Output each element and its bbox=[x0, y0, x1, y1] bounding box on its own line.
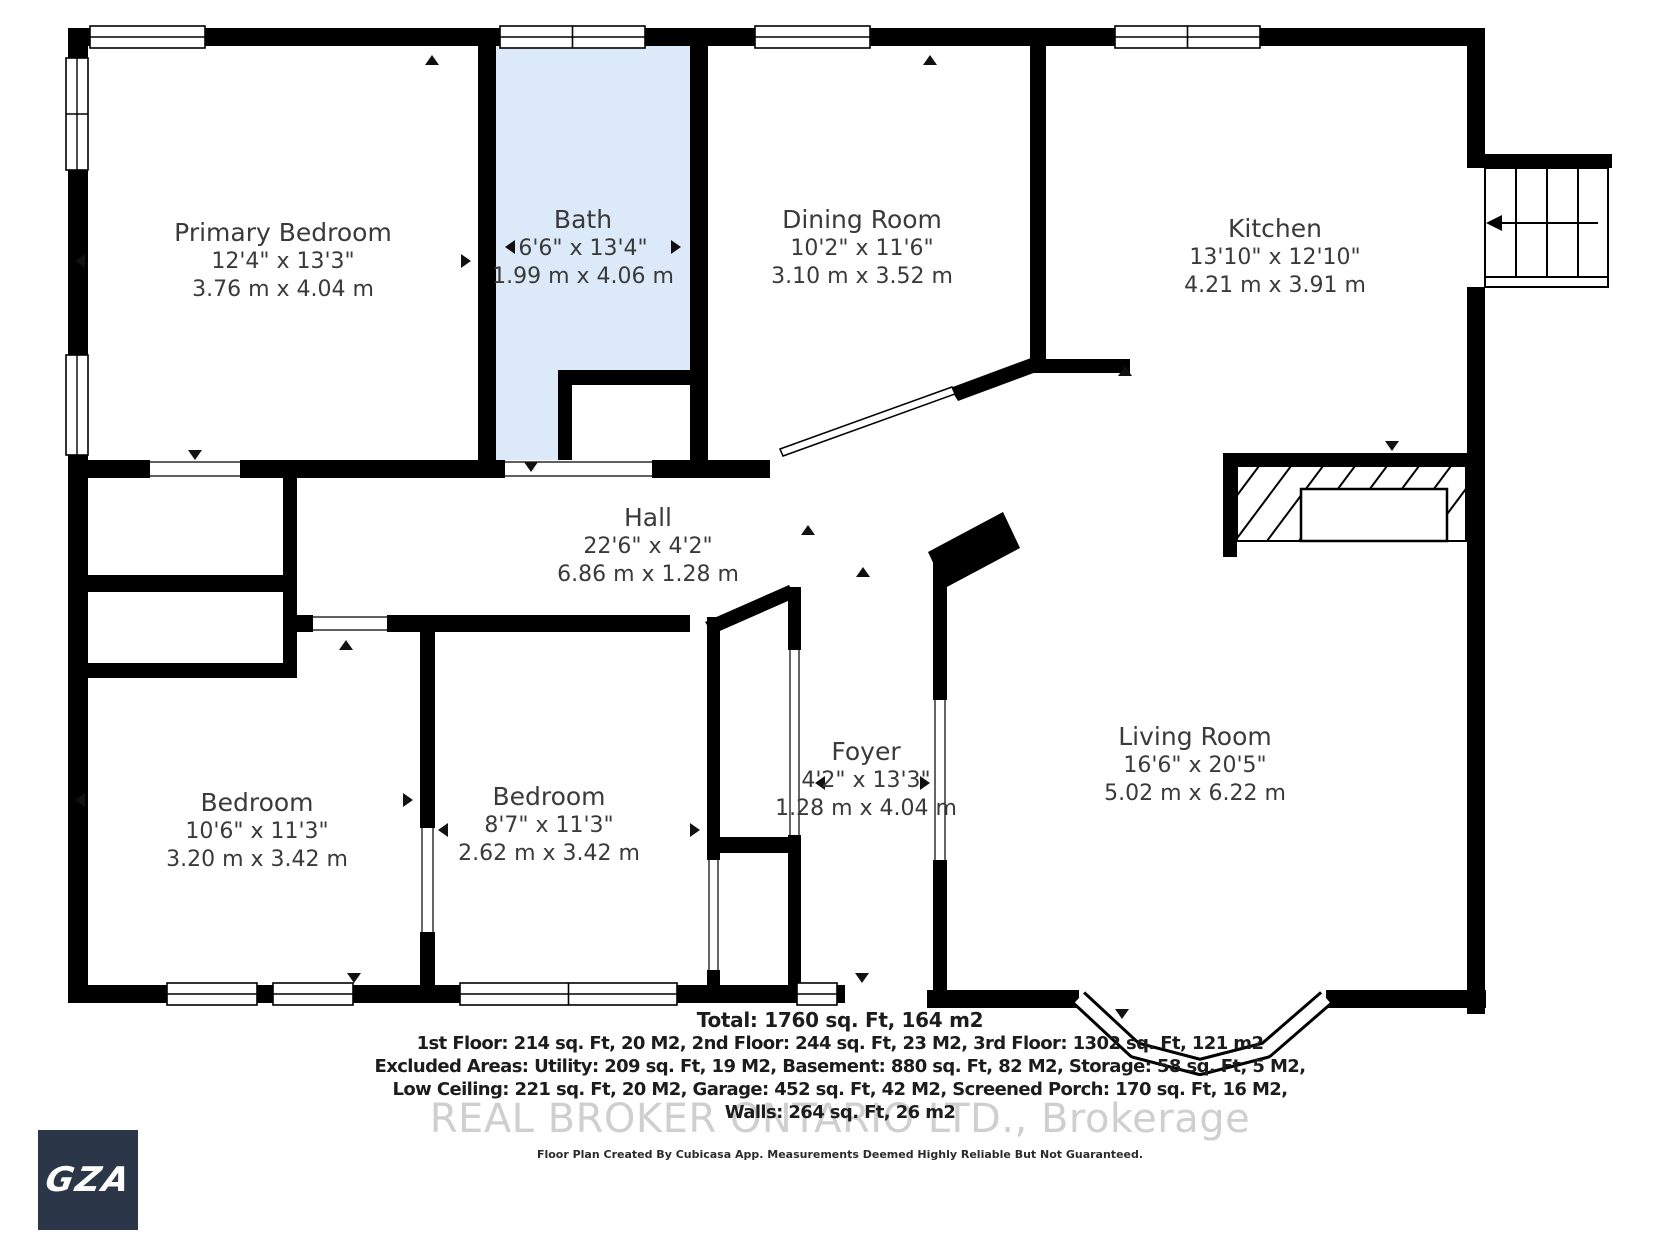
room-label-dining-room: Dining Room 10'2" x 11'6" 3.10 m x 3.52 … bbox=[771, 205, 953, 291]
door-arrow-icon bbox=[856, 567, 870, 577]
door-arrow-icon bbox=[461, 254, 471, 268]
door-arrow-icon bbox=[188, 450, 202, 460]
door-arrow-icon bbox=[923, 55, 937, 65]
room-name: Living Room bbox=[1104, 722, 1286, 752]
room-dims-m: 3.76 m x 4.04 m bbox=[174, 276, 392, 304]
room-label-bath: Bath 6'6" x 13'4" 1.99 m x 4.06 m bbox=[492, 205, 674, 291]
room-name: Kitchen bbox=[1184, 214, 1366, 244]
room-dims-m: 4.21 m x 3.91 m bbox=[1184, 272, 1366, 300]
room-name: Bedroom bbox=[166, 788, 348, 818]
room-dims-ft: 12'4" x 13'3" bbox=[174, 248, 392, 276]
area-summary: Total: 1760 sq. Ft, 164 m2 1st Floor: 21… bbox=[0, 1008, 1680, 1124]
summary-line-1: 1st Floor: 214 sq. Ft, 20 M2, 2nd Floor:… bbox=[0, 1032, 1680, 1055]
room-label-primary-bedroom: Primary Bedroom 12'4" x 13'3" 3.76 m x 4… bbox=[174, 218, 392, 304]
door-arrow-icon bbox=[524, 462, 538, 472]
summary-line-2: Excluded Areas: Utility: 209 sq. Ft, 19 … bbox=[0, 1055, 1680, 1078]
door-arrow-icon bbox=[1385, 441, 1399, 451]
room-dims-m: 3.10 m x 3.52 m bbox=[771, 263, 953, 291]
door-arrow-icon bbox=[801, 525, 815, 535]
room-dims-ft: 8'7" x 11'3" bbox=[458, 812, 640, 840]
room-label-bedroom-middle: Bedroom 8'7" x 11'3" 2.62 m x 3.42 m bbox=[458, 782, 640, 868]
room-dims-m: 6.86 m x 1.28 m bbox=[557, 561, 739, 589]
room-dims-m: 3.20 m x 3.42 m bbox=[166, 846, 348, 874]
room-label-bedroom-left: Bedroom 10'6" x 11'3" 3.20 m x 3.42 m bbox=[166, 788, 348, 874]
room-name: Foyer bbox=[775, 737, 957, 767]
room-name: Hall bbox=[557, 503, 739, 533]
room-dims-ft: 6'6" x 13'4" bbox=[492, 235, 674, 263]
disclaimer-text: Floor Plan Created By Cubicasa App. Meas… bbox=[0, 1148, 1680, 1161]
room-dims-m: 1.28 m x 4.04 m bbox=[775, 795, 957, 823]
room-label-hall: Hall 22'6" x 4'2" 6.86 m x 1.28 m bbox=[557, 503, 739, 589]
door-arrow-icon bbox=[690, 823, 700, 837]
door-arrow-icon bbox=[403, 793, 413, 807]
summary-line-4: Walls: 264 sq. Ft, 26 m2 bbox=[0, 1101, 1680, 1124]
floor-plan-page: Primary Bedroom 12'4" x 13'3" 3.76 m x 4… bbox=[0, 0, 1680, 1260]
door-arrow-icon bbox=[339, 640, 353, 650]
room-dims-ft: 16'6" x 20'5" bbox=[1104, 752, 1286, 780]
room-dims-m: 1.99 m x 4.06 m bbox=[492, 263, 674, 291]
room-dims-ft: 22'6" x 4'2" bbox=[557, 533, 739, 561]
room-label-kitchen: Kitchen 13'10" x 12'10" 4.21 m x 3.91 m bbox=[1184, 214, 1366, 300]
door-arrow-icon bbox=[855, 973, 869, 983]
room-name: Bath bbox=[492, 205, 674, 235]
room-dims-ft: 13'10" x 12'10" bbox=[1184, 244, 1366, 272]
room-dims-m: 5.02 m x 6.22 m bbox=[1104, 780, 1286, 808]
door-leaf-icon bbox=[780, 387, 955, 456]
room-name: Primary Bedroom bbox=[174, 218, 392, 248]
room-name: Dining Room bbox=[771, 205, 953, 235]
room-dims-ft: 4'2" x 13'3" bbox=[775, 767, 957, 795]
fireplace-icon bbox=[1200, 462, 1486, 545]
room-label-living-room: Living Room 16'6" x 20'5" 5.02 m x 6.22 … bbox=[1104, 722, 1286, 808]
gza-logo-text: GZA bbox=[42, 1160, 134, 1200]
door-arrow-icon bbox=[425, 55, 439, 65]
door-arrow-icon bbox=[438, 823, 448, 837]
room-name: Bedroom bbox=[458, 782, 640, 812]
stairs-icon bbox=[1485, 168, 1608, 287]
room-dims-ft: 10'2" x 11'6" bbox=[771, 235, 953, 263]
door-arrow-icon bbox=[347, 973, 361, 983]
summary-line-3: Low Ceiling: 221 sq. Ft, 20 M2, Garage: … bbox=[0, 1078, 1680, 1101]
room-dims-ft: 10'6" x 11'3" bbox=[166, 818, 348, 846]
room-dims-m: 2.62 m x 3.42 m bbox=[458, 840, 640, 868]
room-label-foyer: Foyer 4'2" x 13'3" 1.28 m x 4.04 m bbox=[775, 737, 957, 823]
bath-closet bbox=[558, 370, 690, 460]
gza-logo: GZA bbox=[38, 1130, 138, 1230]
summary-total: Total: 1760 sq. Ft, 164 m2 bbox=[0, 1008, 1680, 1032]
